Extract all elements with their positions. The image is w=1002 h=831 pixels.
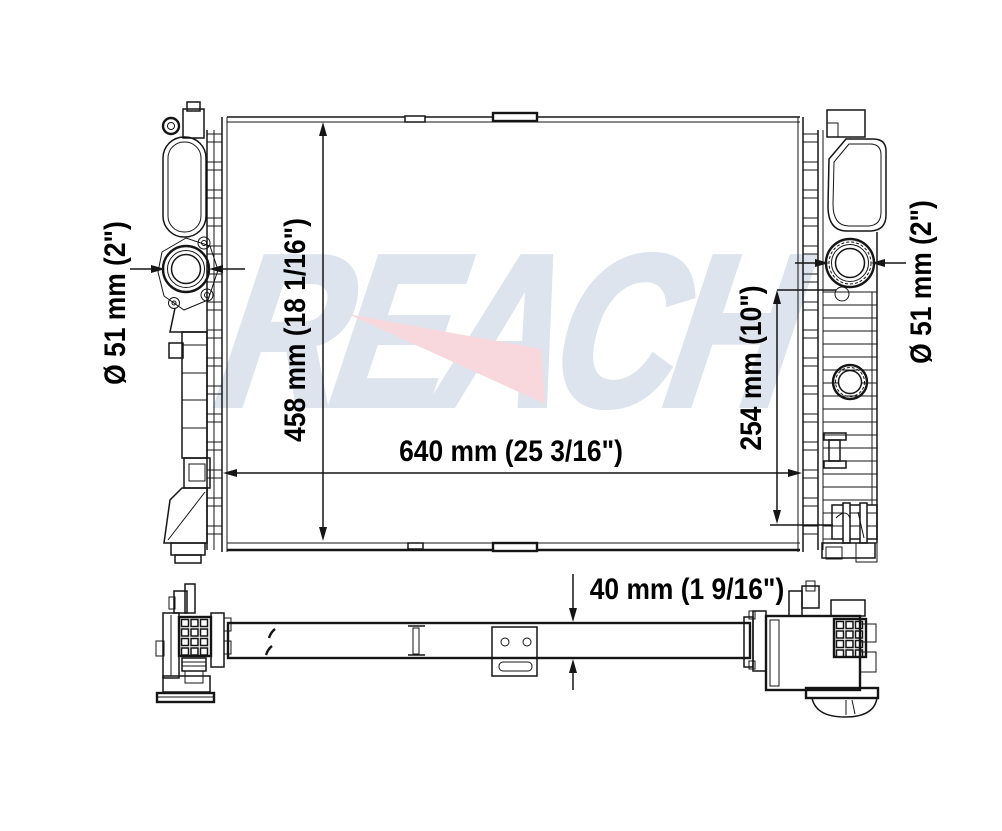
radiator-diagram: REACH	[0, 0, 1002, 831]
left-port	[158, 237, 218, 310]
bar-ibeam-icon	[408, 626, 425, 655]
left-tank	[158, 102, 222, 563]
bar-bracket	[492, 627, 537, 676]
left-connector-grid-icon	[182, 620, 208, 656]
right-port-dimension-label: Ø 51 mm (2")	[905, 200, 939, 364]
right-connector-dome-icon	[812, 698, 877, 717]
left-port-dimension-label: Ø 51 mm (2")	[99, 221, 133, 385]
right-tank-fins	[823, 292, 877, 539]
dim-core-width	[223, 469, 802, 477]
thickness-dimension-label: 40 mm (1 9/16")	[590, 573, 784, 607]
dim-core-height	[319, 122, 327, 541]
core-width-dimension-label: 640 mm (25 3/16")	[399, 435, 623, 469]
right-tank-boss	[833, 365, 867, 399]
right-tank-ribs	[803, 134, 818, 534]
right-tank	[803, 110, 886, 562]
drawing-canvas	[0, 0, 1002, 831]
port-offset-dimension-label: 254 mm (10")	[735, 285, 769, 450]
dim-thickness	[569, 574, 577, 690]
bottom-left-connector	[156, 584, 214, 702]
right-tank-opening	[828, 139, 886, 231]
right-connector-grid-icon	[837, 622, 863, 658]
left-cap-ring-icon	[163, 118, 179, 134]
bottom-bar	[211, 613, 750, 676]
core-height-dimension-label: 458 mm (18 1/16")	[279, 218, 313, 442]
watermark-swoosh-icon	[348, 314, 545, 404]
